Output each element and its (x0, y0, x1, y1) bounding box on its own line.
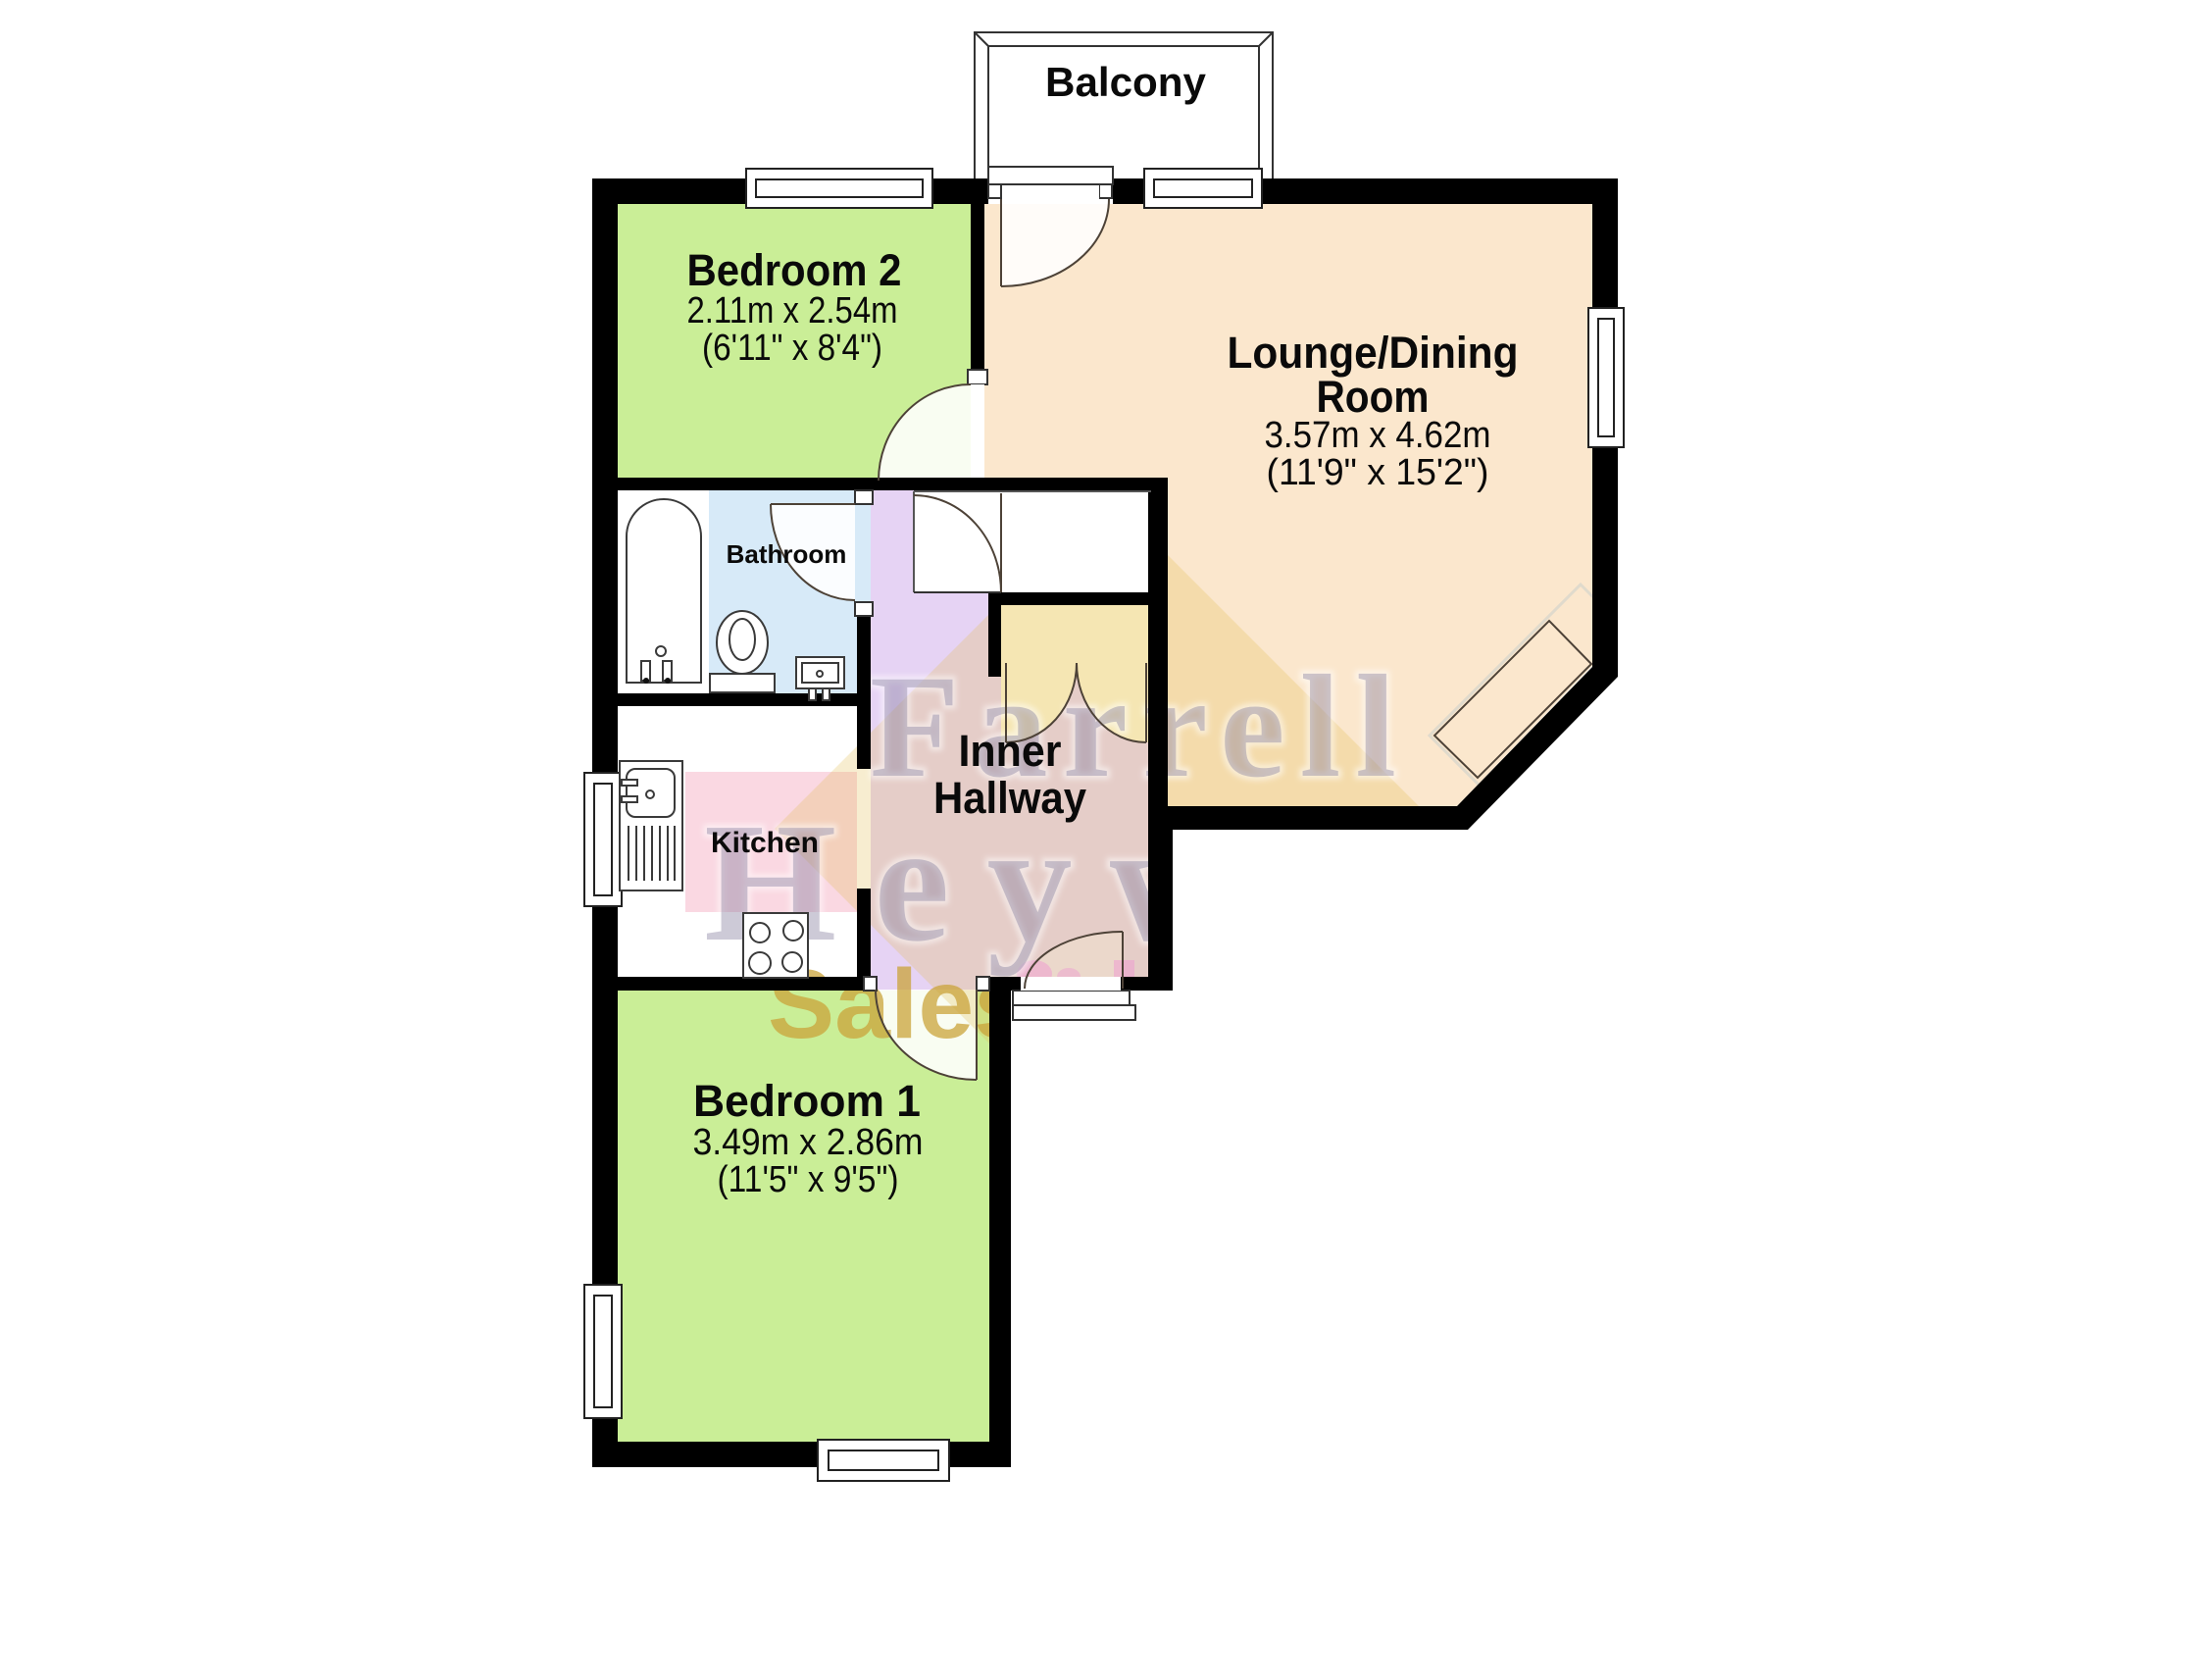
svg-text:Inner: Inner (959, 726, 1062, 776)
svg-text:Bedroom 2: Bedroom 2 (687, 245, 902, 295)
svg-text:2.11m x 2.54m: 2.11m x 2.54m (687, 290, 898, 331)
svg-text:Bathroom: Bathroom (727, 539, 847, 569)
svg-text:(11'5" x 9'5"): (11'5" x 9'5") (718, 1159, 899, 1200)
svg-text:Lounge/Dining: Lounge/Dining (1228, 328, 1519, 378)
svg-text:Hallway: Hallway (933, 773, 1086, 823)
svg-text:Kitchen: Kitchen (711, 827, 819, 859)
svg-text:Bedroom 1: Bedroom 1 (693, 1076, 921, 1126)
svg-text:(6'11" x 8'4"): (6'11" x 8'4") (702, 328, 882, 369)
svg-text:3.49m x 2.86m: 3.49m x 2.86m (693, 1122, 924, 1163)
svg-text:3.57m x 4.62m: 3.57m x 4.62m (1265, 415, 1491, 456)
svg-text:(11'9" x 15'2"): (11'9" x 15'2") (1267, 452, 1489, 493)
svg-text:Balcony: Balcony (1045, 59, 1207, 105)
